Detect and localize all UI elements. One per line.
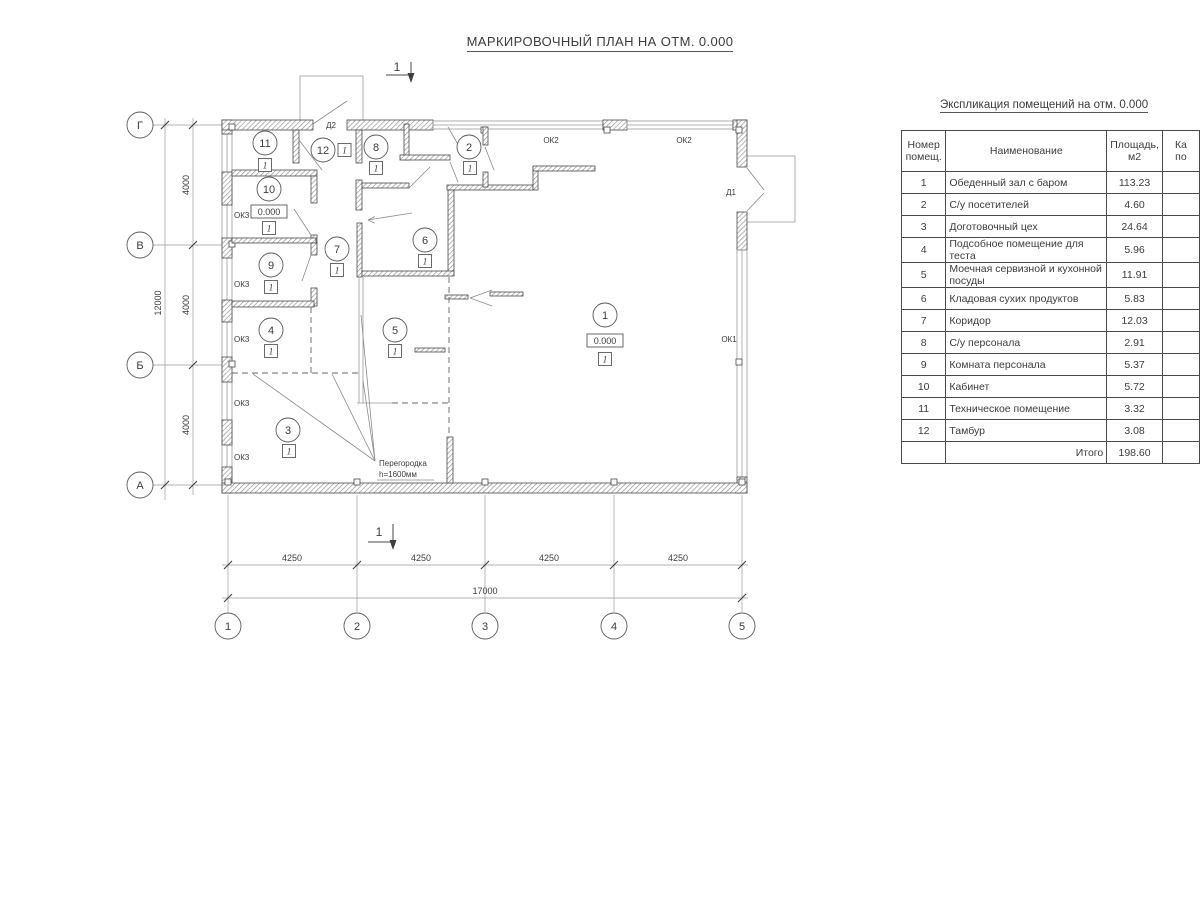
spec-title: Экспликация помещений на отм. 0.000 [940, 95, 1200, 113]
svg-text:2: 2 [466, 142, 472, 154]
grid-row-b: Б [136, 360, 143, 372]
svg-text:12: 12 [317, 145, 329, 157]
outer-walls [222, 76, 795, 493]
floor-mark: 1 [287, 448, 292, 458]
grid-col-1: 1 [225, 621, 231, 633]
room-tag-3: 3 1 [276, 418, 300, 458]
grid-col-5: 5 [739, 621, 745, 633]
floor-mark: 1 [269, 348, 274, 358]
window-label-ok3-1: ОК3 [234, 211, 250, 220]
section-number: 1 [376, 525, 383, 539]
top-porch [300, 76, 363, 120]
window-label-ok2-2: ОК2 [676, 136, 692, 145]
floor-mark: 1 [468, 165, 473, 175]
dim-4250-3: 4250 [539, 553, 559, 563]
window-label-ok2-1: ОК2 [543, 136, 559, 145]
window-label-ok3-3: ОК3 [234, 335, 250, 344]
floor-mark: 1 [267, 225, 272, 235]
spec-header-name: Наименование [946, 131, 1107, 172]
spec-header-row: Номер помещ. Наименование Площадь, м2 Ка… [902, 131, 1200, 172]
room-tag-6: 6 1 [413, 228, 437, 268]
table-row: 12Тамбур3.08 [902, 420, 1200, 442]
partition-note-line1: Перегородка [379, 459, 427, 468]
right-porch [747, 156, 795, 222]
floor-mark: 1 [393, 348, 398, 358]
window-label-ok3-5: ОК3 [234, 453, 250, 462]
table-row: 6Кладовая сухих продуктов5.83 [902, 288, 1200, 310]
table-row: 10Кабинет5.72 [902, 376, 1200, 398]
room-tag-9: 9 1 [259, 253, 283, 294]
dim-12000: 12000 [153, 290, 163, 315]
room-tag-4: 4 1 [259, 318, 283, 358]
floor-mark: 1 [603, 356, 608, 366]
door-label-d2: Д2 [326, 121, 336, 130]
dim-4250-2: 4250 [411, 553, 431, 563]
room-tag-11: 11 1 [253, 131, 277, 172]
window-label-ok3-4: ОК3 [234, 399, 250, 408]
grid-row-g: Г [137, 120, 143, 132]
window-label-ok1: ОК1 [721, 335, 737, 344]
door-label-d1: Д1 [726, 188, 736, 197]
table-row: 1Обеденный зал с баром113.23 [902, 172, 1200, 194]
grid-row-a: А [136, 480, 144, 492]
total-value: 198.60 [1107, 442, 1163, 464]
table-row: 3Доготовочный цех24.64 [902, 216, 1200, 238]
svg-text:8: 8 [373, 142, 379, 154]
table-row: 4Подсобное помещение для теста5.96 [902, 238, 1200, 263]
window-label-ok3-2: ОК3 [234, 280, 250, 289]
room-tag-8: 8 1 [364, 135, 388, 175]
svg-text:5: 5 [392, 325, 398, 337]
table-total-row: Итого 198.60 [902, 442, 1200, 464]
floor-mark: 1 [263, 162, 268, 172]
svg-text:1: 1 [602, 310, 608, 322]
dim-17000: 17000 [472, 586, 497, 596]
table-row: 7Коридор12.03 [902, 310, 1200, 332]
table-row: 5Моечная сервизной и кухонной посуды11.9… [902, 263, 1200, 288]
room-tag-7: 7 1 [325, 237, 349, 277]
total-label: Итого [946, 442, 1107, 464]
partition-note-line2: h=1600мм [379, 470, 417, 479]
grid-col-4: 4 [611, 621, 617, 633]
svg-text:4: 4 [268, 325, 274, 337]
table-row: 2С/у посетителей4.60 [902, 194, 1200, 216]
dim-4250-4: 4250 [668, 553, 688, 563]
svg-text:6: 6 [422, 235, 428, 247]
spec-header-num: Номер помещ. [902, 131, 946, 172]
svg-text:7: 7 [334, 244, 340, 256]
room-tag-12: 12 1 [311, 138, 351, 162]
partition-note: Перегородка h=1600мм [253, 315, 434, 480]
spec-header-cut: Ка по [1162, 131, 1199, 172]
svg-text:10: 10 [263, 184, 275, 196]
section-number: 1 [394, 60, 401, 74]
drawing-sheet: МАРКИРОВОЧНЫЙ ПЛАН НА ОТМ. 0.000 [0, 0, 1200, 900]
spec-title-text: Экспликация помещений на отм. 0.000 [940, 99, 1148, 113]
floor-mark: 1 [335, 267, 340, 277]
grid-row-v: В [136, 240, 143, 252]
svg-text:3: 3 [285, 425, 291, 437]
floor-mark: 1 [342, 147, 347, 157]
room-tag-10: 10 0.000 1 [251, 177, 287, 235]
table-row: 9Комната персонала5.37 [902, 354, 1200, 376]
floor-mark: 1 [423, 258, 428, 268]
svg-text:9: 9 [268, 260, 274, 272]
section-mark-bottom: 1 [368, 524, 397, 550]
table-row: 8С/у персонала2.91 [902, 332, 1200, 354]
grid-col-2: 2 [354, 621, 360, 633]
grid-bubbles: Г В Б А 1 2 3 4 5 [127, 112, 755, 639]
dim-4000-2: 4000 [181, 295, 191, 315]
room-tags: 1 0.000 1 2 1 3 1 4 1 5 1 6 1 [251, 131, 623, 458]
elevation-mark: 0.000 [258, 207, 281, 217]
dim-4000-3: 4000 [181, 415, 191, 435]
elevation-mark: 0.000 [594, 336, 617, 346]
floor-mark: 1 [269, 284, 274, 294]
dim-4000-1: 4000 [181, 175, 191, 195]
floor-mark: 1 [374, 165, 379, 175]
section-mark-top: 1 [386, 60, 415, 83]
room-tag-5: 5 1 [383, 318, 407, 358]
room-tag-1: 1 0.000 1 [587, 303, 623, 366]
table-row: 11Техническое помещение3.32 [902, 398, 1200, 420]
dim-4250-1: 4250 [282, 553, 302, 563]
grid-col-3: 3 [482, 621, 488, 633]
spec-header-area: Площадь, м2 [1107, 131, 1163, 172]
room-spec-table: Номер помещ. Наименование Площадь, м2 Ка… [901, 130, 1200, 464]
svg-text:11: 11 [259, 138, 270, 150]
room-tag-2: 2 1 [457, 135, 481, 175]
